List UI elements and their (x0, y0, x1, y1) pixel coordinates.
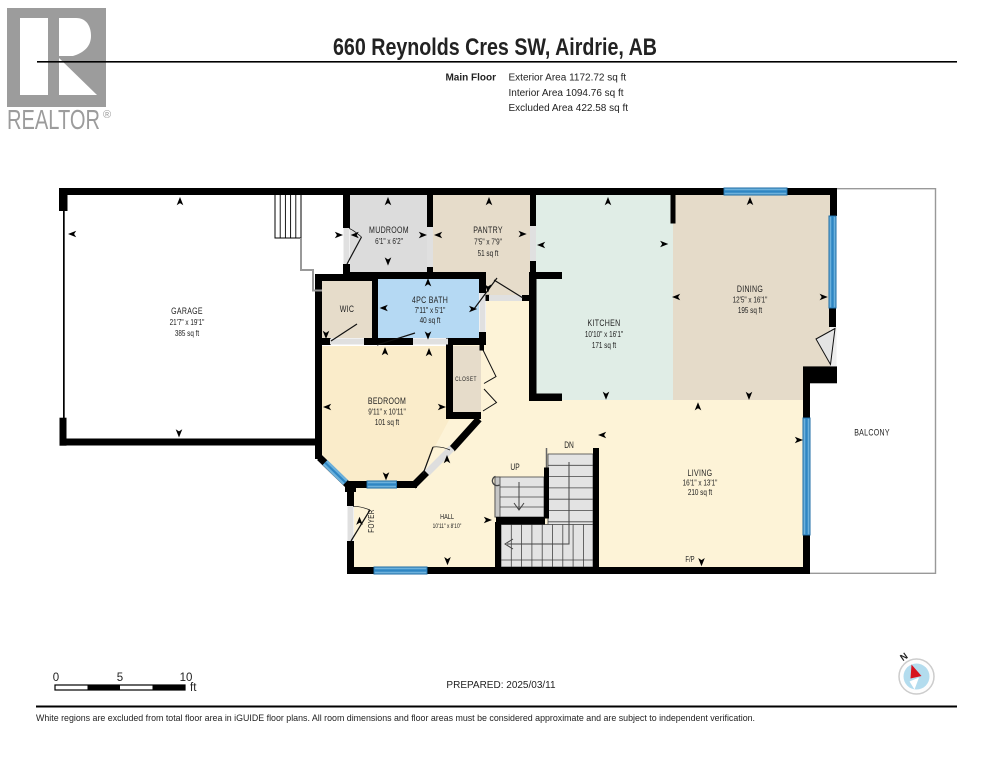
svg-text:DN: DN (564, 440, 574, 450)
svg-text:KITCHEN: KITCHEN (588, 317, 621, 328)
svg-text:BALCONY: BALCONY (854, 426, 890, 437)
svg-text:Main Floor: Main Floor (445, 73, 496, 84)
svg-text:9'11" x 10'11": 9'11" x 10'11" (368, 407, 406, 417)
svg-text:21'7" x 19'1": 21'7" x 19'1" (170, 317, 205, 327)
svg-text:CLOSET: CLOSET (455, 376, 477, 383)
svg-text:White regions are excluded fro: White regions are excluded from total fl… (36, 713, 755, 723)
svg-text:195 sq ft: 195 sq ft (738, 305, 763, 315)
svg-text:40 sq ft: 40 sq ft (420, 315, 442, 325)
svg-text:0: 0 (53, 672, 59, 684)
svg-text:Excluded Area 422.58 sq ft: Excluded Area 422.58 sq ft (509, 103, 629, 114)
svg-text:Exterior Area 1172.72 sq ft: Exterior Area 1172.72 sq ft (509, 73, 627, 84)
svg-text:®: ® (103, 109, 111, 121)
svg-text:101 sq ft: 101 sq ft (375, 417, 400, 427)
svg-text:PREPARED: 2025/03/11: PREPARED: 2025/03/11 (446, 680, 556, 691)
svg-text:6'1" x 6'2": 6'1" x 6'2" (375, 236, 403, 246)
svg-text:4PC BATH: 4PC BATH (412, 294, 448, 305)
svg-text:BEDROOM: BEDROOM (368, 395, 406, 406)
svg-text:51 sq ft: 51 sq ft (478, 248, 500, 258)
svg-text:7'11" x 5'1": 7'11" x 5'1" (415, 305, 446, 315)
svg-text:385 sq ft: 385 sq ft (175, 328, 200, 338)
svg-text:DINING: DINING (737, 283, 763, 294)
svg-text:12'5" x 16'1": 12'5" x 16'1" (733, 295, 768, 305)
svg-text:HALL: HALL (440, 513, 454, 521)
svg-text:171 sq ft: 171 sq ft (592, 340, 617, 350)
svg-text:FOYER: FOYER (366, 509, 376, 533)
svg-text:PANTRY: PANTRY (473, 224, 503, 235)
svg-text:210 sq ft: 210 sq ft (688, 487, 713, 497)
svg-text:WIC: WIC (340, 303, 355, 314)
svg-text:GARAGE: GARAGE (171, 305, 203, 316)
svg-text:MUDROOM: MUDROOM (369, 224, 409, 235)
svg-text:10'11" x 8'10": 10'11" x 8'10" (433, 523, 462, 530)
svg-text:5: 5 (117, 672, 123, 684)
svg-text:10'10" x 16'1": 10'10" x 16'1" (585, 329, 624, 339)
svg-text:Interior Area 1094.76 sq ft: Interior Area 1094.76 sq ft (509, 88, 624, 99)
svg-text:REALTOR: REALTOR (7, 104, 100, 135)
svg-text:F/P: F/P (685, 556, 694, 564)
svg-text:660 Reynolds Cres SW, Airdrie,: 660 Reynolds Cres SW, Airdrie, AB (333, 34, 657, 61)
svg-text:ft: ft (190, 682, 197, 694)
svg-text:UP: UP (510, 462, 519, 472)
svg-text:7'5" x 7'9": 7'5" x 7'9" (474, 237, 502, 247)
